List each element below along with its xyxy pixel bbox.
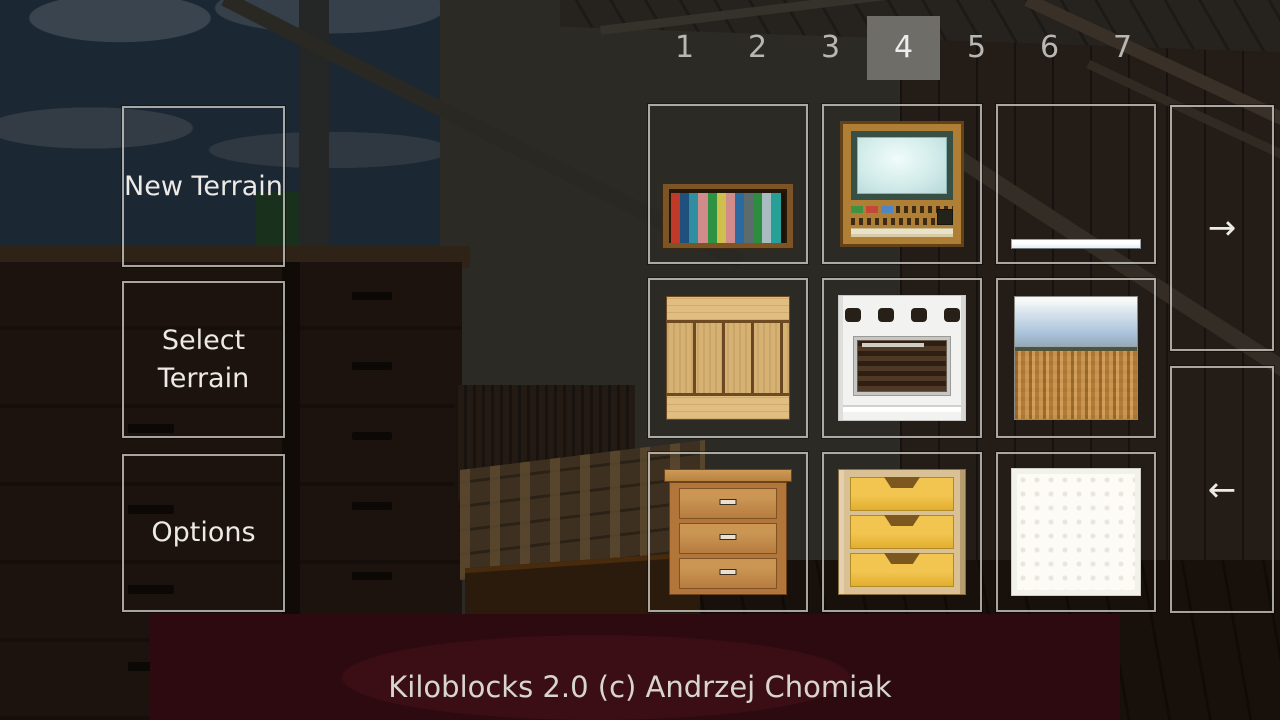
palette-tile-white-slab[interactable]: [996, 104, 1156, 264]
drawer: [679, 558, 777, 589]
palette-tile-wooden-planks[interactable]: [648, 278, 808, 438]
previous-page-button[interactable]: ←: [1170, 366, 1274, 613]
book-spines: [671, 193, 785, 243]
page-tab-3[interactable]: 3: [794, 16, 867, 80]
new-terrain-button[interactable]: New Terrain: [122, 106, 285, 267]
right-arrow-icon: →: [1208, 208, 1237, 248]
palette-tile-wooden-dresser[interactable]: [648, 452, 808, 612]
terrain-view-icon: [1014, 296, 1138, 420]
drawer: [850, 515, 954, 549]
drawer: [679, 488, 777, 519]
palette-tile-yellow-drawers[interactable]: [822, 452, 982, 612]
page-tab-2[interactable]: 2: [721, 16, 794, 80]
palette-tile-terrain-view[interactable]: [996, 278, 1156, 438]
stove-icon: [838, 295, 966, 421]
palette-tile-white-block[interactable]: [996, 452, 1156, 612]
credit-text: Kiloblocks 2.0 (c) Andrzej Chomiak: [0, 670, 1280, 704]
television-icon: [840, 121, 964, 247]
stove-knobs: [839, 308, 965, 322]
oven-door: [853, 336, 951, 396]
select-terrain-label: Select Terrain: [124, 322, 283, 398]
yellow-drawers-icon: [838, 469, 966, 595]
white-block-icon: [1012, 469, 1140, 595]
palette-tile-stove[interactable]: [822, 278, 982, 438]
page-tab-6[interactable]: 6: [1013, 16, 1086, 80]
drawer: [679, 523, 777, 554]
white-slab-icon: [1011, 239, 1141, 249]
page-number-bar: 1 2 3 4 5 6 7: [648, 16, 1159, 80]
page-tab-5[interactable]: 5: [940, 16, 1013, 80]
drawer: [850, 477, 954, 511]
new-terrain-label: New Terrain: [124, 168, 283, 206]
block-palette-grid: [648, 104, 1156, 612]
game-menu-screen: New Terrain Select Terrain Options 1 2 3…: [0, 0, 1280, 720]
page-tab-7[interactable]: 7: [1086, 16, 1159, 80]
options-button[interactable]: Options: [122, 454, 285, 612]
page-tab-1[interactable]: 1: [648, 16, 721, 80]
wooden-dresser-icon: [664, 469, 792, 595]
drawer: [850, 553, 954, 587]
page-tab-4-selected[interactable]: 4: [867, 16, 940, 80]
next-page-button[interactable]: →: [1170, 105, 1274, 351]
select-terrain-button[interactable]: Select Terrain: [122, 281, 285, 438]
tv-screen: [857, 137, 947, 194]
options-label: Options: [151, 514, 255, 552]
left-arrow-icon: ←: [1208, 470, 1237, 510]
palette-tile-television[interactable]: [822, 104, 982, 264]
wooden-planks-icon: [666, 296, 790, 420]
palette-tile-bookshelf[interactable]: [648, 104, 808, 264]
bookshelf-icon: [662, 183, 794, 249]
